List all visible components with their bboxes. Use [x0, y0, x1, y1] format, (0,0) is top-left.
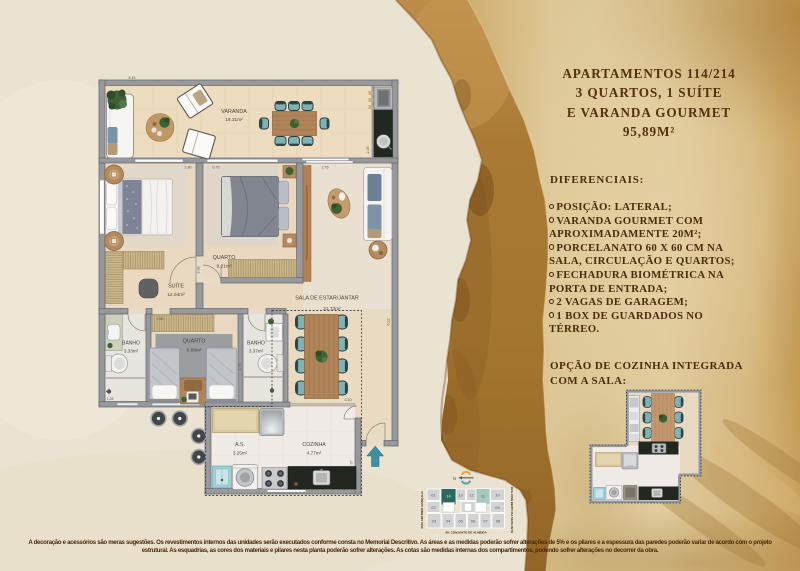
svg-text:3.38: 3.38 [197, 267, 201, 274]
svg-text:SUÍTE: SUÍTE [168, 283, 184, 290]
svg-text:QUARTO: QUARTO [183, 339, 206, 345]
svg-text:BANHO: BANHO [122, 341, 140, 347]
svg-text:SALA DE ESTAR/JANTAR: SALA DE ESTAR/JANTAR [295, 296, 359, 302]
svg-text:BANHO: BANHO [247, 341, 265, 347]
svg-text:6.22: 6.22 [387, 319, 391, 326]
svg-text:13: 13 [458, 493, 463, 498]
svg-text:12.04m²: 12.04m² [167, 292, 185, 298]
svg-text:21.73m²: 21.73m² [323, 306, 341, 312]
svg-text:3.25m²: 3.25m² [233, 451, 248, 456]
svg-text:AV. CONJUNTO DE ALMEIDA: AV. CONJUNTO DE ALMEIDA [445, 531, 487, 535]
svg-text:3.37m²: 3.37m² [249, 349, 264, 354]
svg-text:8.45: 8.45 [129, 76, 136, 80]
svg-text:03: 03 [432, 519, 437, 524]
svg-text:VARANDA: VARANDA [221, 109, 247, 115]
svg-text:01: 01 [431, 493, 436, 498]
svg-text:2.26: 2.26 [366, 147, 370, 154]
svg-text:3.10: 3.10 [345, 398, 352, 402]
svg-text:12: 12 [469, 493, 474, 498]
svg-text:N: N [453, 476, 456, 481]
svg-text:07: 07 [483, 519, 488, 524]
svg-text:02: 02 [431, 505, 436, 510]
svg-text:04: 04 [446, 519, 451, 524]
svg-text:2.37: 2.37 [350, 461, 354, 468]
svg-text:3.33m²: 3.33m² [124, 349, 139, 354]
svg-text:06: 06 [471, 519, 476, 524]
svg-text:RUA JOSÉ BENTO DA SILVA NETO: RUA JOSÉ BENTO DA SILVA NETO [510, 487, 515, 534]
svg-text:2.50: 2.50 [157, 317, 164, 321]
svg-text:9.21m²: 9.21m² [217, 264, 232, 270]
svg-text:19.31m²: 19.31m² [225, 117, 243, 123]
svg-text:4.77m²: 4.77m² [307, 451, 322, 456]
svg-text:2.76: 2.76 [322, 166, 329, 170]
svg-text:08: 08 [496, 519, 501, 524]
svg-text:0.75: 0.75 [213, 166, 220, 170]
svg-text:6.88m²: 6.88m² [187, 348, 202, 354]
svg-text:QUARTO: QUARTO [213, 255, 236, 261]
svg-text:14: 14 [446, 494, 451, 499]
svg-text:10: 10 [495, 493, 500, 498]
svg-text:09: 09 [495, 505, 500, 510]
svg-text:COZINHA: COZINHA [302, 442, 326, 448]
svg-text:05: 05 [458, 519, 463, 524]
svg-text:1.28: 1.28 [107, 397, 114, 401]
svg-text:1.75: 1.75 [238, 364, 242, 371]
svg-text:2.80: 2.80 [185, 166, 192, 170]
svg-text:A.S.: A.S. [235, 442, 245, 448]
svg-text:RUA ANTONIO GONÇALO: RUA ANTONIO GONÇALO [420, 491, 424, 529]
